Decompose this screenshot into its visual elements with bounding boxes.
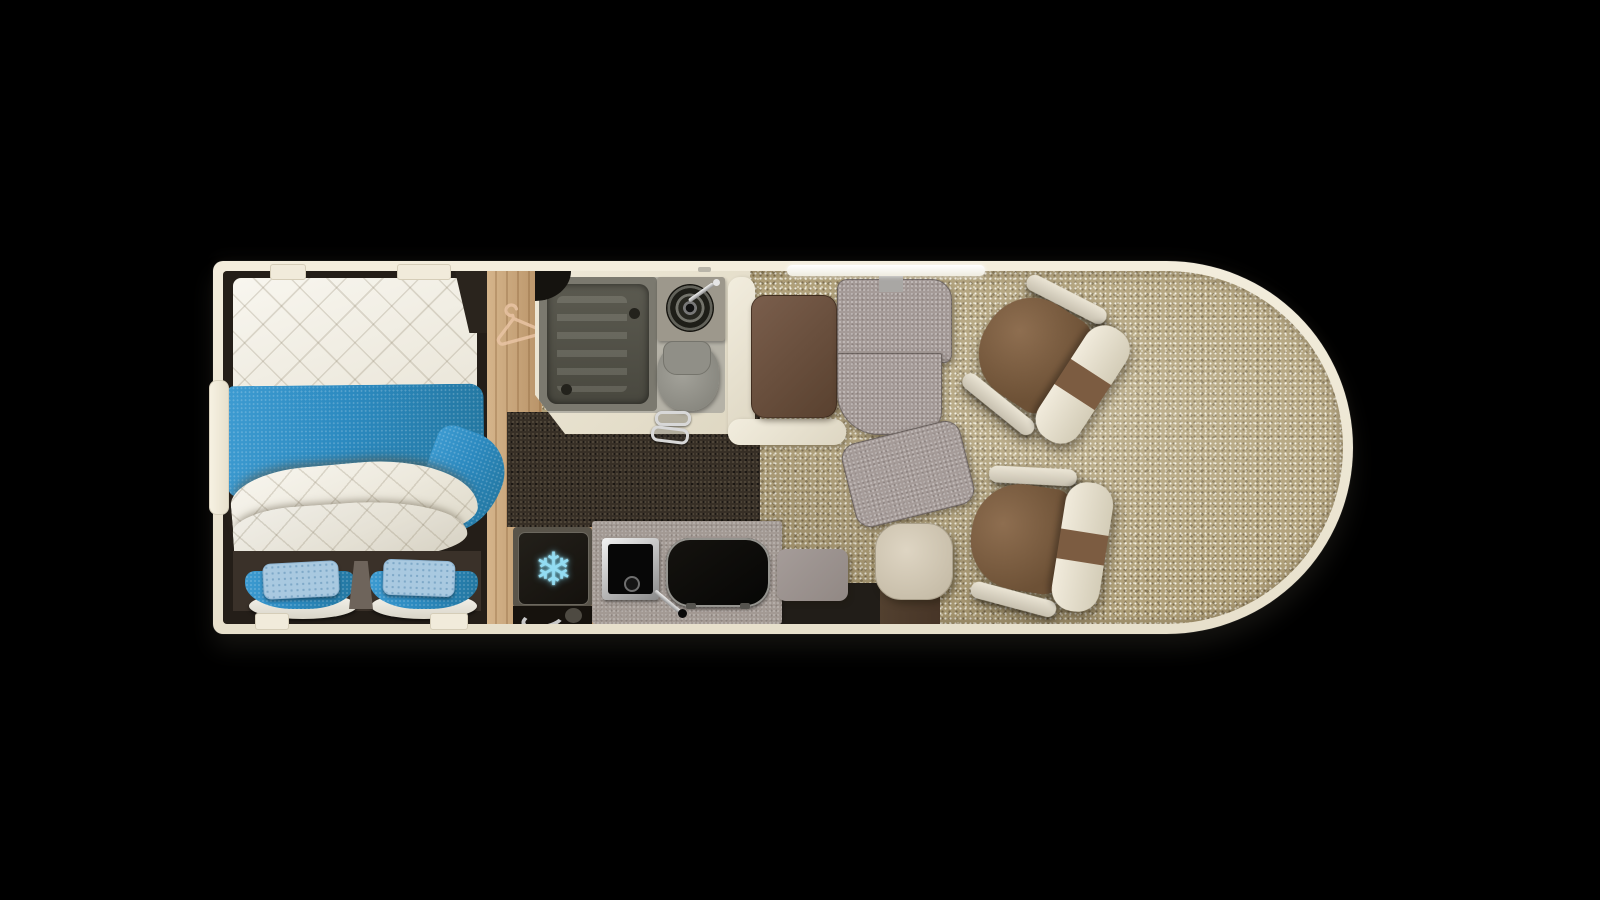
roof-vent-bedroom-1	[270, 264, 306, 280]
floorplan-interior: ❄	[223, 271, 1343, 624]
scene-background: ❄	[0, 0, 1600, 900]
fridge: ❄	[513, 527, 592, 608]
dinette-bench-seat-lower	[837, 353, 942, 435]
fridge-vent	[513, 606, 592, 624]
window-top-strip	[787, 265, 985, 276]
kitchen-faucet-base	[678, 609, 687, 618]
basin-faucet-knob	[713, 279, 720, 286]
fridge-vent-cap	[565, 608, 582, 623]
fridge-door: ❄	[518, 532, 589, 605]
shower-tray-ridges	[557, 296, 627, 392]
shower-drain	[561, 384, 572, 395]
pillow-left	[262, 560, 340, 600]
vent-top-small	[698, 267, 711, 272]
window-bottom-2	[430, 613, 468, 630]
stool	[875, 523, 953, 600]
hob-hinge-left	[686, 603, 696, 609]
pilot-seat-stripe	[1056, 528, 1108, 565]
bathroom-door-handle	[655, 411, 691, 426]
shower-drain-2	[629, 308, 640, 319]
washbasin	[666, 284, 714, 332]
dinette-bench-front	[728, 419, 846, 445]
shower-tray	[547, 284, 649, 404]
motorhome-floorplan: ❄	[213, 261, 1353, 634]
kitchen-sink	[602, 538, 659, 600]
pilot-seat-right	[953, 456, 1124, 624]
pillow-right	[382, 559, 455, 597]
hob	[666, 538, 770, 607]
roof-vent-bedroom-2	[397, 264, 451, 280]
dinette-table	[751, 295, 837, 418]
pilot-seat-armrest	[989, 465, 1078, 487]
bedroom	[223, 271, 487, 624]
bathroom	[535, 271, 750, 434]
counter-step	[777, 549, 848, 601]
snowflake-icon: ❄	[534, 546, 573, 592]
hob-hinge-right	[740, 603, 750, 609]
window-bottom-1	[255, 613, 289, 630]
window-left-wall	[209, 380, 229, 515]
toilet-lid	[663, 341, 711, 375]
fridge-vent-handle	[519, 605, 566, 624]
kitchen-sink-drain	[624, 576, 640, 592]
